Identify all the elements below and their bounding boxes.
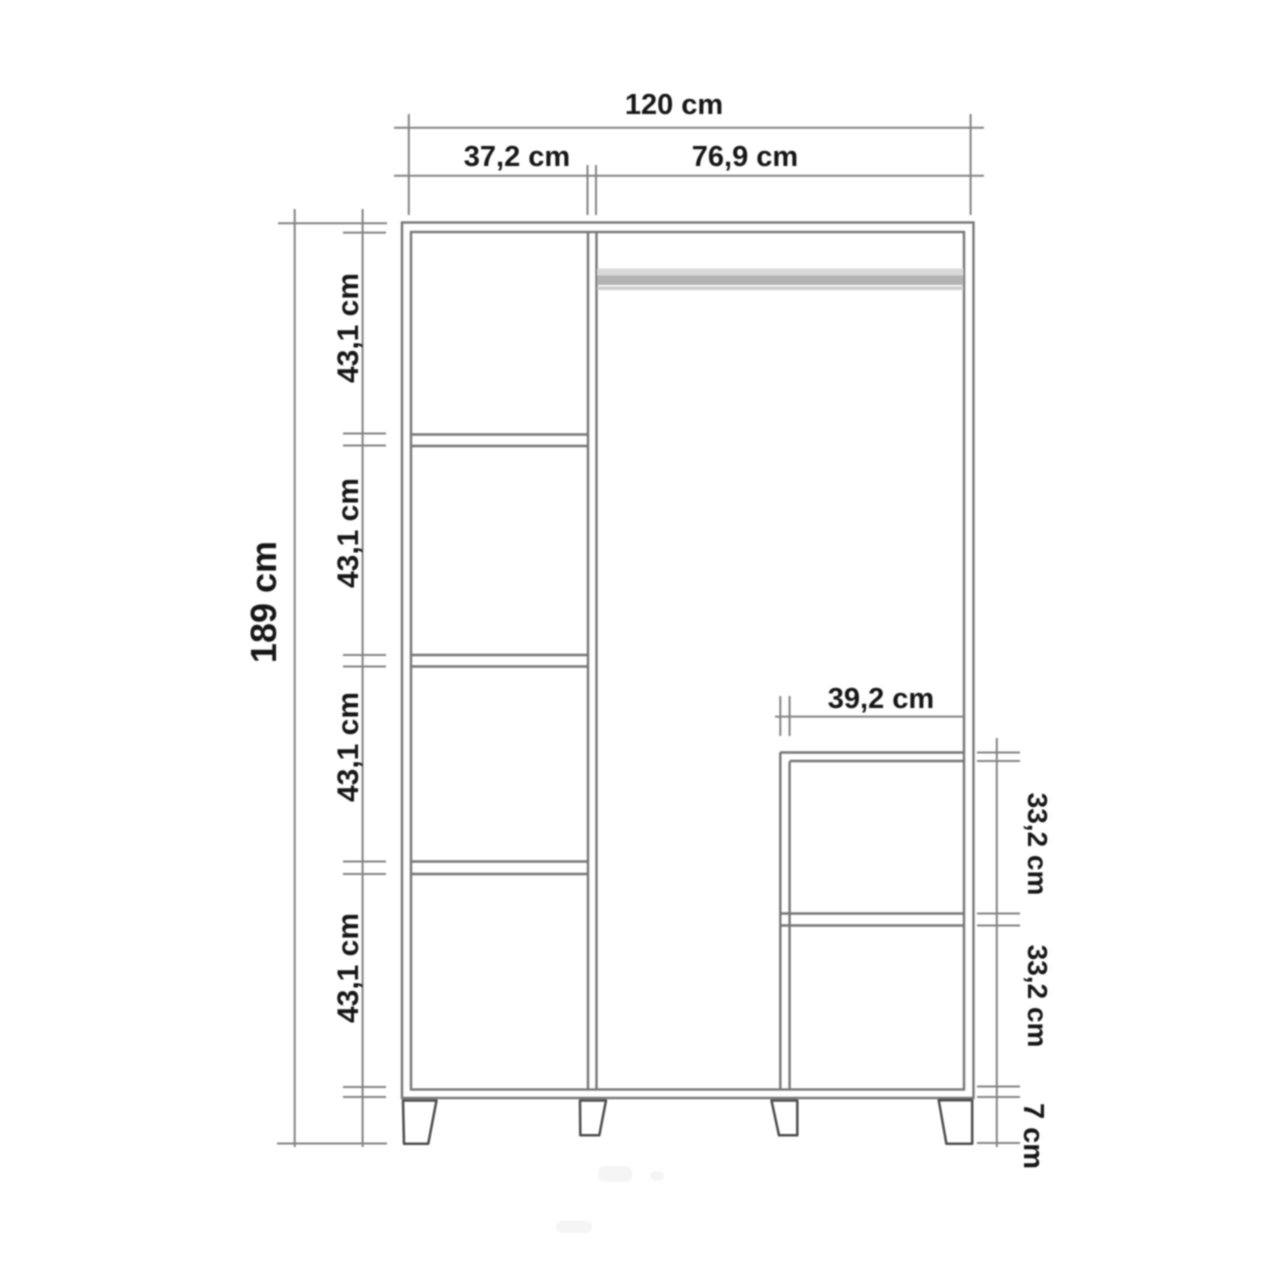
svg-text:7 cm: 7 cm	[1017, 1103, 1049, 1169]
svg-text:43,1 cm: 43,1 cm	[332, 913, 365, 1023]
svg-text:43,1 cm: 43,1 cm	[332, 273, 365, 383]
svg-text:37,2 cm: 37,2 cm	[464, 141, 570, 173]
svg-text:33,2 cm: 33,2 cm	[1022, 793, 1053, 896]
svg-text:33,2 cm: 33,2 cm	[1022, 945, 1053, 1048]
svg-text:189 cm: 189 cm	[243, 541, 284, 663]
svg-text:120 cm: 120 cm	[625, 89, 723, 121]
svg-text:39,2 cm: 39,2 cm	[828, 683, 934, 715]
svg-text:43,1 cm: 43,1 cm	[332, 478, 365, 588]
svg-text:76,9 cm: 76,9 cm	[692, 141, 798, 173]
svg-text:43,1 cm: 43,1 cm	[332, 692, 365, 802]
